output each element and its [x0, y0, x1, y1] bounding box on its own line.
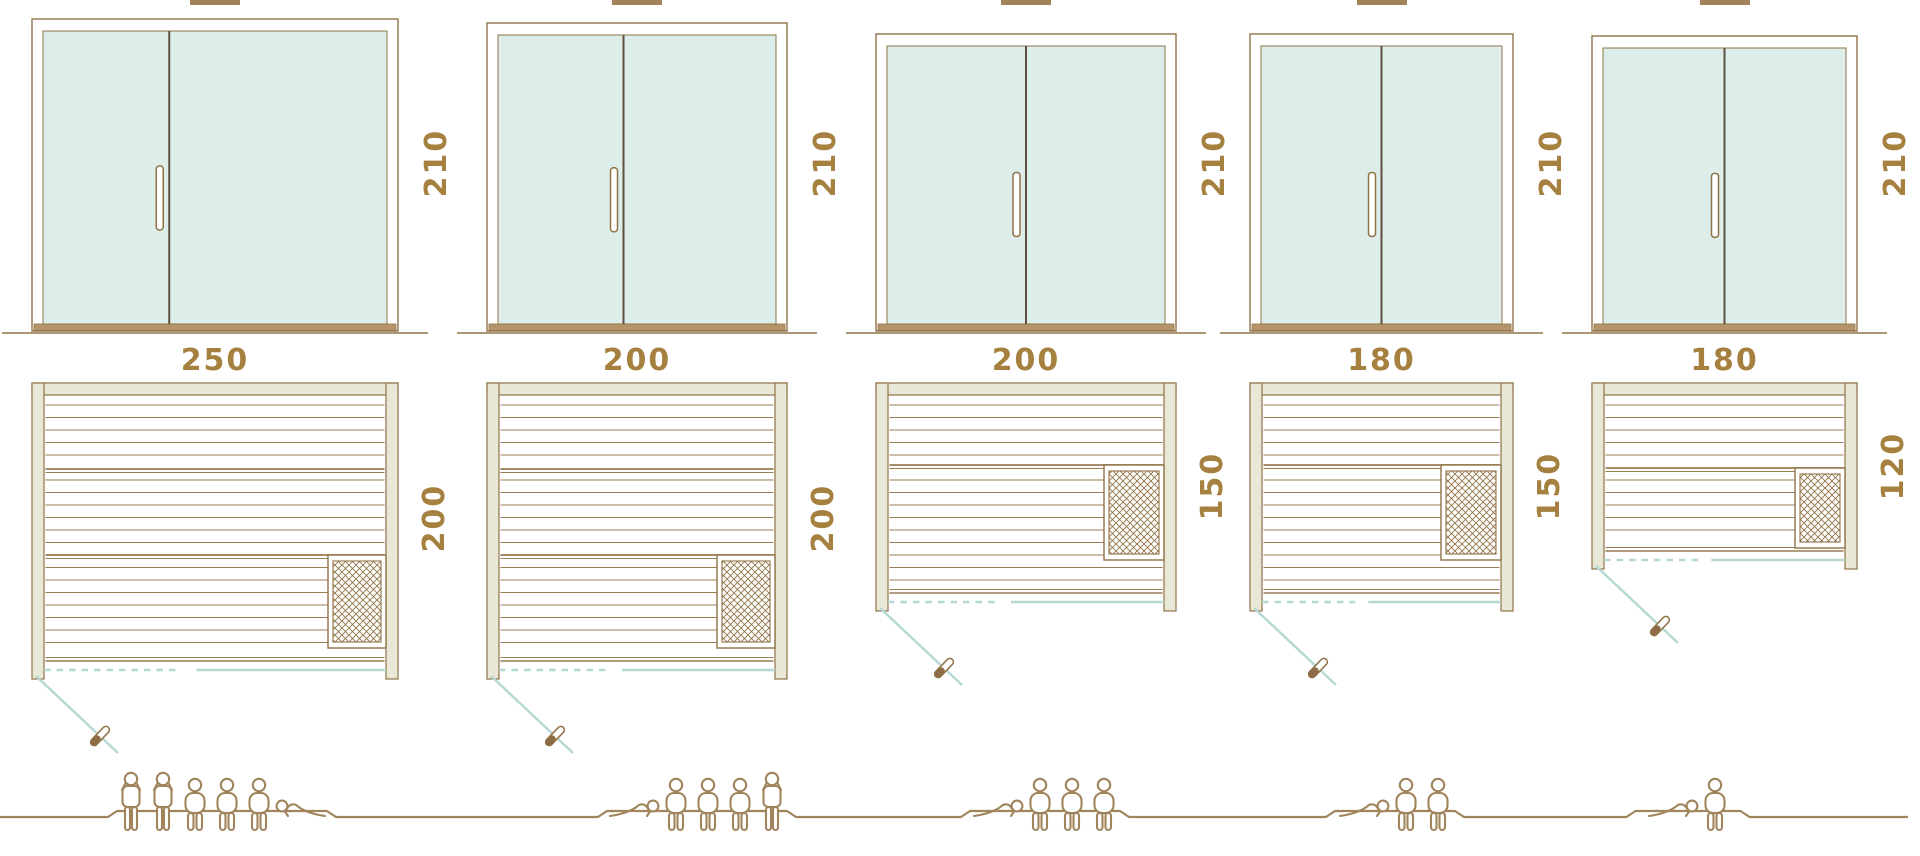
door-sill	[1594, 324, 1855, 331]
width-label: 200	[856, 344, 1196, 378]
person-standing-icon	[154, 773, 172, 830]
person-sitting-icon	[186, 779, 205, 830]
person-sitting-icon	[1095, 779, 1114, 830]
door-elevation	[846, 33, 1206, 336]
width-label: 180	[1572, 344, 1877, 378]
floor-plan	[864, 383, 1188, 717]
door-handle-icon	[1369, 172, 1376, 236]
door-sill	[34, 324, 396, 331]
depth-label: 120	[1877, 431, 1911, 501]
plan-wall-back	[876, 383, 1176, 395]
top-bar	[1357, 0, 1407, 5]
top-bar	[612, 0, 662, 5]
heater-crosshatch	[722, 561, 770, 642]
height-label: 210	[809, 128, 843, 198]
plan-wall-right	[1164, 383, 1176, 611]
door-sill	[1252, 324, 1511, 331]
door-sill	[878, 324, 1174, 331]
person-sitting-icon	[1031, 779, 1050, 830]
glass-panel	[498, 35, 776, 324]
door-elevation	[2, 18, 428, 336]
person-sitting-icon	[731, 779, 750, 830]
person-sitting-icon	[667, 779, 686, 830]
person-sitting-icon	[1063, 779, 1082, 830]
person-sitting-icon	[699, 779, 718, 830]
top-bar	[190, 0, 240, 5]
door-swing-line	[1596, 566, 1678, 643]
person-lying-icon	[610, 801, 658, 816]
person-standing-icon	[763, 773, 781, 830]
plan-wall-left	[876, 383, 888, 611]
depth-label: 150	[1533, 451, 1567, 521]
plan-wall-back	[1592, 383, 1857, 395]
width-label: 250	[12, 344, 418, 378]
plan-wall-left	[487, 383, 499, 679]
person-sitting-icon	[218, 779, 237, 830]
plan-wall-right	[386, 383, 398, 679]
plan-wall-back	[32, 383, 398, 395]
heater-crosshatch	[1800, 474, 1840, 542]
floor-plan	[475, 383, 799, 785]
door-handle-icon	[1013, 172, 1020, 236]
plan-wall-right	[1845, 383, 1857, 569]
person-sitting-icon	[1706, 779, 1725, 830]
person-lying-icon	[1649, 801, 1697, 816]
plan-wall-back	[487, 383, 787, 395]
door-swing-line	[491, 676, 573, 753]
floor-plan	[20, 383, 410, 785]
capacity-row	[0, 750, 1920, 856]
person-standing-icon	[122, 773, 140, 830]
depth-label: 200	[418, 483, 452, 553]
plan-wall-right	[1501, 383, 1513, 611]
person-sitting-icon	[1397, 779, 1416, 830]
plan-wall-left	[32, 383, 44, 679]
door-elevation	[1220, 33, 1543, 336]
heater-crosshatch	[333, 561, 381, 642]
door-swing-line	[880, 608, 962, 685]
top-bar	[1700, 0, 1750, 5]
heater-crosshatch	[1446, 471, 1496, 554]
depth-label: 200	[807, 483, 841, 553]
heater-crosshatch	[1109, 471, 1159, 554]
glass-panel	[43, 31, 387, 324]
door-elevation	[1562, 35, 1887, 336]
height-label: 210	[1879, 128, 1913, 198]
plan-wall-left	[1250, 383, 1262, 611]
depth-label: 150	[1196, 451, 1230, 521]
plan-wall-back	[1250, 383, 1513, 395]
plan-wall-right	[775, 383, 787, 679]
person-lying-icon	[277, 801, 325, 816]
floor-plan	[1580, 383, 1869, 675]
person-lying-icon	[1340, 801, 1388, 816]
top-bar	[1001, 0, 1051, 5]
plan-wall-left	[1592, 383, 1604, 569]
person-sitting-icon	[1429, 779, 1448, 830]
person-lying-icon	[974, 801, 1022, 816]
door-elevation	[457, 22, 817, 336]
floor-plan	[1238, 383, 1525, 717]
door-swing-line	[1254, 608, 1336, 685]
door-sill	[489, 324, 785, 331]
person-sitting-icon	[250, 779, 269, 830]
door-handle-icon	[1712, 173, 1719, 237]
width-label: 200	[467, 344, 807, 378]
door-handle-icon	[156, 166, 163, 230]
sauna-size-diagram: 2102502002102002002102001502101801502101…	[0, 0, 1920, 856]
door-handle-icon	[611, 168, 618, 232]
width-label: 180	[1230, 344, 1533, 378]
door-swing-line	[36, 676, 118, 753]
height-label: 210	[420, 128, 454, 198]
